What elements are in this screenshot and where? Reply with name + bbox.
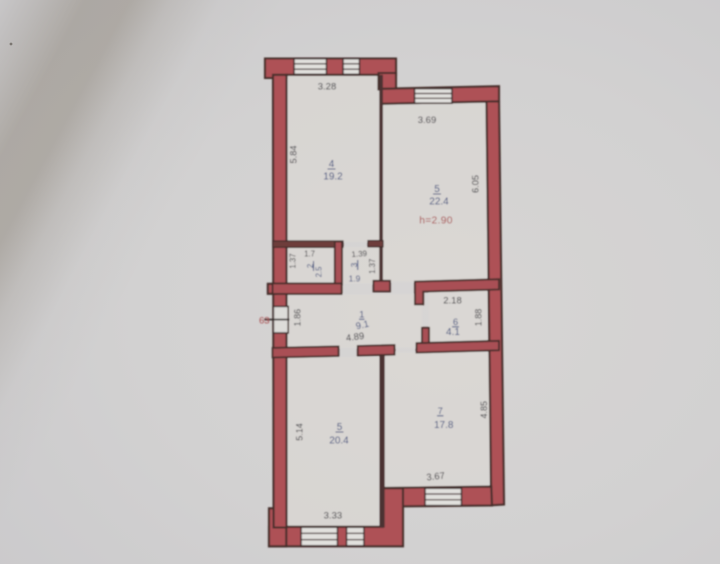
svg-text:4.1: 4.1 [446, 327, 460, 338]
svg-text:63: 63 [259, 316, 270, 327]
svg-text:1.88: 1.88 [473, 309, 483, 327]
svg-text:1.39: 1.39 [351, 249, 368, 259]
svg-text:3.67: 3.67 [426, 471, 446, 484]
svg-text:6.05: 6.05 [471, 175, 481, 193]
svg-text:1.86: 1.86 [293, 309, 303, 327]
svg-text:3.28: 3.28 [318, 82, 337, 93]
svg-text:19.2: 19.2 [323, 172, 343, 183]
svg-text:4.85: 4.85 [479, 401, 489, 419]
svg-text:5.84: 5.84 [289, 146, 299, 164]
svg-text:5.14: 5.14 [295, 423, 305, 441]
svg-text:3.33: 3.33 [324, 511, 343, 522]
svg-text:1.37: 1.37 [288, 253, 297, 268]
svg-text:4: 4 [329, 159, 335, 170]
svg-text:2.18: 2.18 [443, 296, 462, 307]
svg-text:5: 5 [337, 422, 343, 433]
svg-text:3.69: 3.69 [418, 115, 437, 126]
svg-text:2.5: 2.5 [315, 266, 324, 278]
svg-text:1.9: 1.9 [349, 274, 361, 284]
svg-text:22.4: 22.4 [429, 197, 449, 208]
svg-text:h=2.90: h=2.90 [419, 216, 453, 227]
svg-text:20.4: 20.4 [329, 436, 349, 447]
svg-text:17.8: 17.8 [434, 420, 454, 431]
svg-text:1.7: 1.7 [304, 250, 315, 259]
svg-text:5: 5 [434, 184, 440, 195]
svg-text:1.37: 1.37 [368, 259, 377, 274]
